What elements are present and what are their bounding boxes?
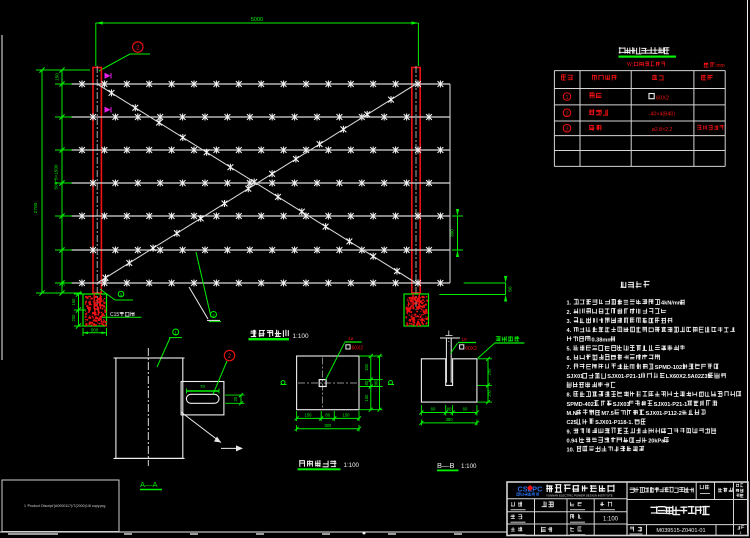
- svg-text:SJX01-P21-1: SJX01-P21-1: [654, 402, 688, 408]
- svg-text:0.38mm: 0.38mm: [592, 337, 613, 343]
- svg-text:60X2: 60X2: [352, 346, 364, 352]
- svg-text:8.: 8.: [567, 393, 572, 399]
- svg-text:2.: 2.: [567, 310, 572, 316]
- svg-text:1.: 1.: [567, 301, 572, 307]
- svg-text:A—A: A—A: [140, 480, 158, 489]
- svg-text:10.: 10.: [567, 447, 575, 453]
- svg-text:M7.5: M7.5: [601, 411, 613, 417]
- svg-text:80: 80: [364, 380, 369, 385]
- svg-text:2700: 2700: [33, 202, 39, 213]
- svg-text:SJX01: SJX01: [567, 374, 584, 380]
- svg-text:500*5=1500: 500*5=1500: [54, 164, 59, 189]
- svg-text::mm: :mm: [715, 63, 725, 69]
- svg-text:1ø: 1ø: [462, 337, 468, 342]
- svg-text:SJX01-P21-1: SJX01-P21-1: [607, 374, 641, 380]
- svg-text:60X2: 60X2: [656, 96, 669, 102]
- svg-text:M.N: M.N: [567, 411, 577, 417]
- svg-text:60X2: 60X2: [465, 346, 477, 352]
- svg-text:1:100: 1:100: [293, 333, 309, 340]
- svg-text:W;: W;: [627, 62, 633, 68]
- svg-text:SPMD-1021: SPMD-1021: [655, 365, 685, 371]
- svg-text:380: 380: [324, 423, 332, 428]
- svg-text:150: 150: [71, 298, 76, 306]
- svg-text:0.94: 0.94: [567, 439, 579, 445]
- svg-text:380: 380: [446, 417, 454, 422]
- svg-text:1:100: 1:100: [603, 517, 619, 523]
- svg-text:7.: 7.: [567, 365, 572, 371]
- svg-text:150: 150: [487, 389, 492, 397]
- svg-text:4.: 4.: [567, 328, 572, 334]
- svg-text:ø2.8×2.2: ø2.8×2.2: [652, 127, 673, 133]
- svg-text:5.: 5.: [567, 347, 572, 353]
- svg-text:1ø: 1ø: [348, 336, 354, 341]
- svg-text:80: 80: [325, 413, 330, 418]
- svg-text:4kN/mm: 4kN/mm: [661, 301, 683, 307]
- svg-text:20: 20: [233, 396, 238, 401]
- svg-text:150: 150: [55, 73, 60, 81]
- svg-text:SJX01-P112-2: SJX01-P112-2: [646, 411, 682, 417]
- svg-text:380: 380: [374, 379, 379, 387]
- svg-text:LX60X2.5A02Z35: LX60X2.5A02Z35: [666, 374, 711, 380]
- svg-text:5000: 5000: [251, 17, 263, 23]
- svg-text:1: 1: [174, 330, 177, 336]
- svg-text:1:100: 1:100: [344, 462, 360, 469]
- svg-text:80: 80: [447, 407, 452, 412]
- svg-text:150: 150: [305, 413, 313, 418]
- svg-text:M039515-Z0401-01: M039515-Z0401-01: [656, 528, 705, 534]
- svg-text:60: 60: [431, 407, 436, 412]
- svg-text:50: 50: [61, 281, 66, 286]
- svg-text:150: 150: [364, 363, 369, 371]
- svg-text:70: 70: [200, 384, 205, 389]
- svg-text:3: 3: [566, 127, 569, 133]
- svg-text:150: 150: [364, 394, 369, 402]
- svg-text:-40×4(B40): -40×4(B40): [649, 112, 675, 118]
- svg-text:20kPa: 20kPa: [648, 439, 665, 445]
- svg-text:150: 150: [343, 413, 351, 418]
- svg-text:SJX01: SJX01: [613, 402, 630, 408]
- svg-text:60: 60: [463, 407, 468, 412]
- svg-text:200: 200: [71, 314, 76, 322]
- svg-text:SPMD-4021: SPMD-4021: [567, 402, 597, 408]
- svg-text:3.: 3.: [567, 319, 572, 325]
- svg-text:500: 500: [91, 328, 99, 333]
- svg-text:1 'Product Discript'(A0000117): 1 'Product Discript'(A0000117)/T(2000)1/…: [24, 504, 105, 508]
- svg-text:2: 2: [566, 111, 569, 117]
- svg-text:B—B: B—B: [437, 461, 455, 470]
- svg-text:YUNNAN ELECTRIC POWER DESIGN I: YUNNAN ELECTRIC POWER DESIGN INSTITUTE: [546, 493, 613, 497]
- svg-text:SJX01-P118-1.: SJX01-P118-1.: [595, 420, 633, 426]
- svg-text:C25: C25: [567, 420, 577, 426]
- svg-text:50: 50: [508, 286, 513, 292]
- svg-text:250: 250: [487, 368, 492, 376]
- svg-text:300: 300: [450, 229, 455, 237]
- svg-text:6.: 6.: [567, 356, 572, 362]
- svg-text:1:100: 1:100: [461, 463, 477, 470]
- svg-text:1: 1: [566, 95, 569, 101]
- svg-text:9.: 9.: [567, 429, 572, 435]
- svg-text:2: 2: [212, 313, 215, 319]
